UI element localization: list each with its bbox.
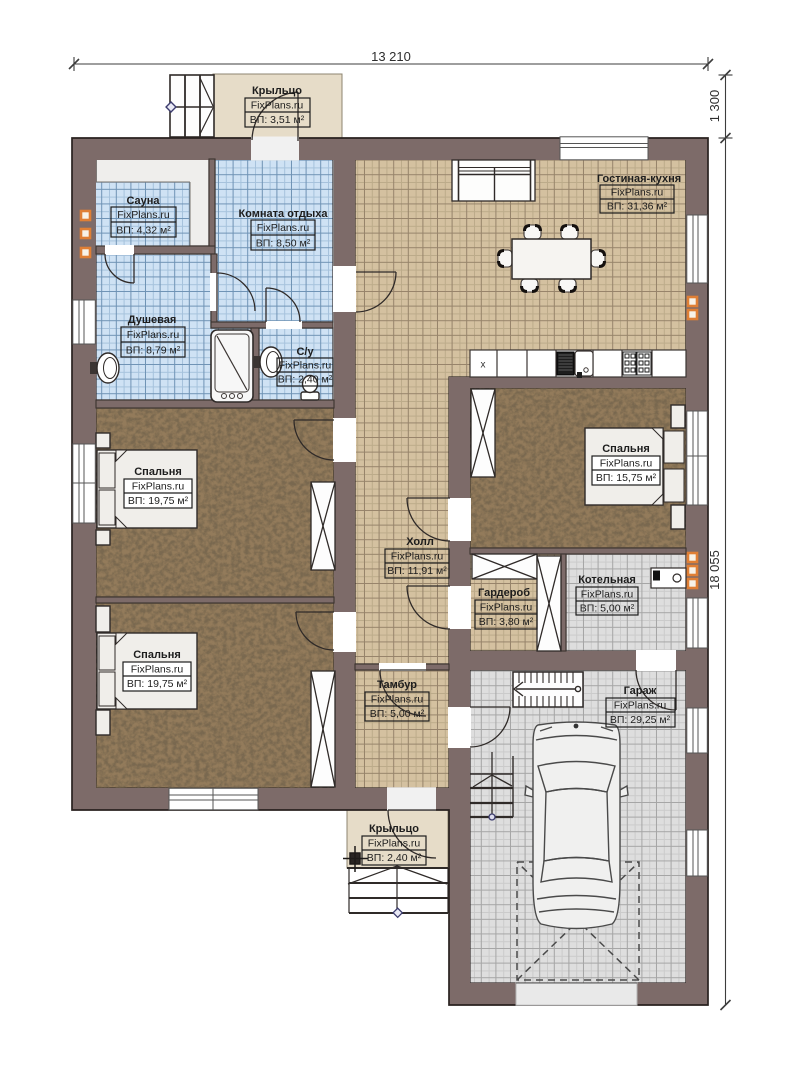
svg-text:Тамбур: Тамбур — [377, 679, 417, 691]
svg-text:FixPlans.ru: FixPlans.ru — [257, 222, 310, 234]
svg-text:FixPlans.ru: FixPlans.ru — [371, 694, 424, 706]
svg-text:ВП: 8,79 м²: ВП: 8,79 м² — [126, 345, 181, 357]
svg-text:ВП: 11,91 м²: ВП: 11,91 м² — [387, 565, 447, 577]
svg-text:Гардероб: Гардероб — [478, 587, 530, 599]
svg-text:FixPlans.ru: FixPlans.ru — [368, 838, 421, 850]
svg-text:Сауна: Сауна — [126, 195, 160, 207]
svg-text:С/у: С/у — [296, 346, 314, 358]
svg-text:ВП: 8,50 м²: ВП: 8,50 м² — [256, 238, 311, 250]
svg-text:ВП: 5,00 м²: ВП: 5,00 м² — [370, 708, 425, 720]
svg-text:Крыльцо: Крыльцо — [369, 823, 419, 835]
svg-text:FixPlans.ru: FixPlans.ru — [279, 360, 332, 372]
svg-text:FixPlans.ru: FixPlans.ru — [600, 458, 653, 470]
svg-text:ВП: 4,32 м²: ВП: 4,32 м² — [116, 225, 171, 237]
svg-text:1 300: 1 300 — [707, 90, 722, 123]
svg-text:FixPlans.ru: FixPlans.ru — [127, 329, 180, 341]
svg-text:ВП: 19,75 м²: ВП: 19,75 м² — [128, 495, 189, 507]
svg-text:FixPlans.ru: FixPlans.ru — [132, 481, 185, 493]
svg-text:ВП: 15,75 м²: ВП: 15,75 м² — [596, 472, 657, 484]
svg-text:Душевая: Душевая — [128, 314, 177, 326]
svg-text:18 055: 18 055 — [707, 550, 722, 590]
svg-text:Комната отдыха: Комната отдыха — [238, 208, 328, 220]
svg-text:FixPlans.ru: FixPlans.ru — [614, 700, 667, 712]
svg-text:FixPlans.ru: FixPlans.ru — [480, 602, 533, 614]
svg-text:13 210: 13 210 — [371, 49, 411, 64]
svg-text:Спальня: Спальня — [134, 466, 182, 478]
svg-text:FixPlans.ru: FixPlans.ru — [251, 100, 304, 112]
svg-text:Гараж: Гараж — [624, 685, 657, 697]
svg-text:x: x — [481, 360, 486, 371]
svg-text:FixPlans.ru: FixPlans.ru — [117, 209, 170, 221]
svg-text:Гостиная-кухня: Гостиная-кухня — [597, 173, 681, 185]
svg-text:ВП: 2,40 м²: ВП: 2,40 м² — [278, 374, 333, 386]
svg-text:Спальня: Спальня — [133, 649, 181, 661]
svg-text:Крыльцо: Крыльцо — [252, 85, 302, 97]
svg-text:Спальня: Спальня — [602, 443, 650, 455]
svg-text:ВП: 19,75 м²: ВП: 19,75 м² — [127, 678, 188, 690]
svg-text:FixPlans.ru: FixPlans.ru — [581, 589, 634, 601]
svg-text:FixPlans.ru: FixPlans.ru — [391, 551, 444, 563]
svg-text:ВП: 2,40 м²: ВП: 2,40 м² — [367, 852, 422, 864]
svg-text:ВП: 31,36 м²: ВП: 31,36 м² — [607, 201, 668, 213]
svg-text:Холл: Холл — [406, 536, 434, 548]
svg-text:FixPlans.ru: FixPlans.ru — [131, 664, 184, 676]
svg-text:Котельная: Котельная — [578, 574, 636, 586]
svg-text:ВП: 5,00 м²: ВП: 5,00 м² — [580, 603, 635, 615]
svg-text:FixPlans.ru: FixPlans.ru — [611, 187, 664, 199]
svg-text:ВП: 3,51 м²: ВП: 3,51 м² — [250, 114, 305, 126]
svg-text:ВП: 3,80 м²: ВП: 3,80 м² — [479, 616, 534, 628]
svg-text:ВП: 29,25 м²: ВП: 29,25 м² — [610, 714, 671, 726]
